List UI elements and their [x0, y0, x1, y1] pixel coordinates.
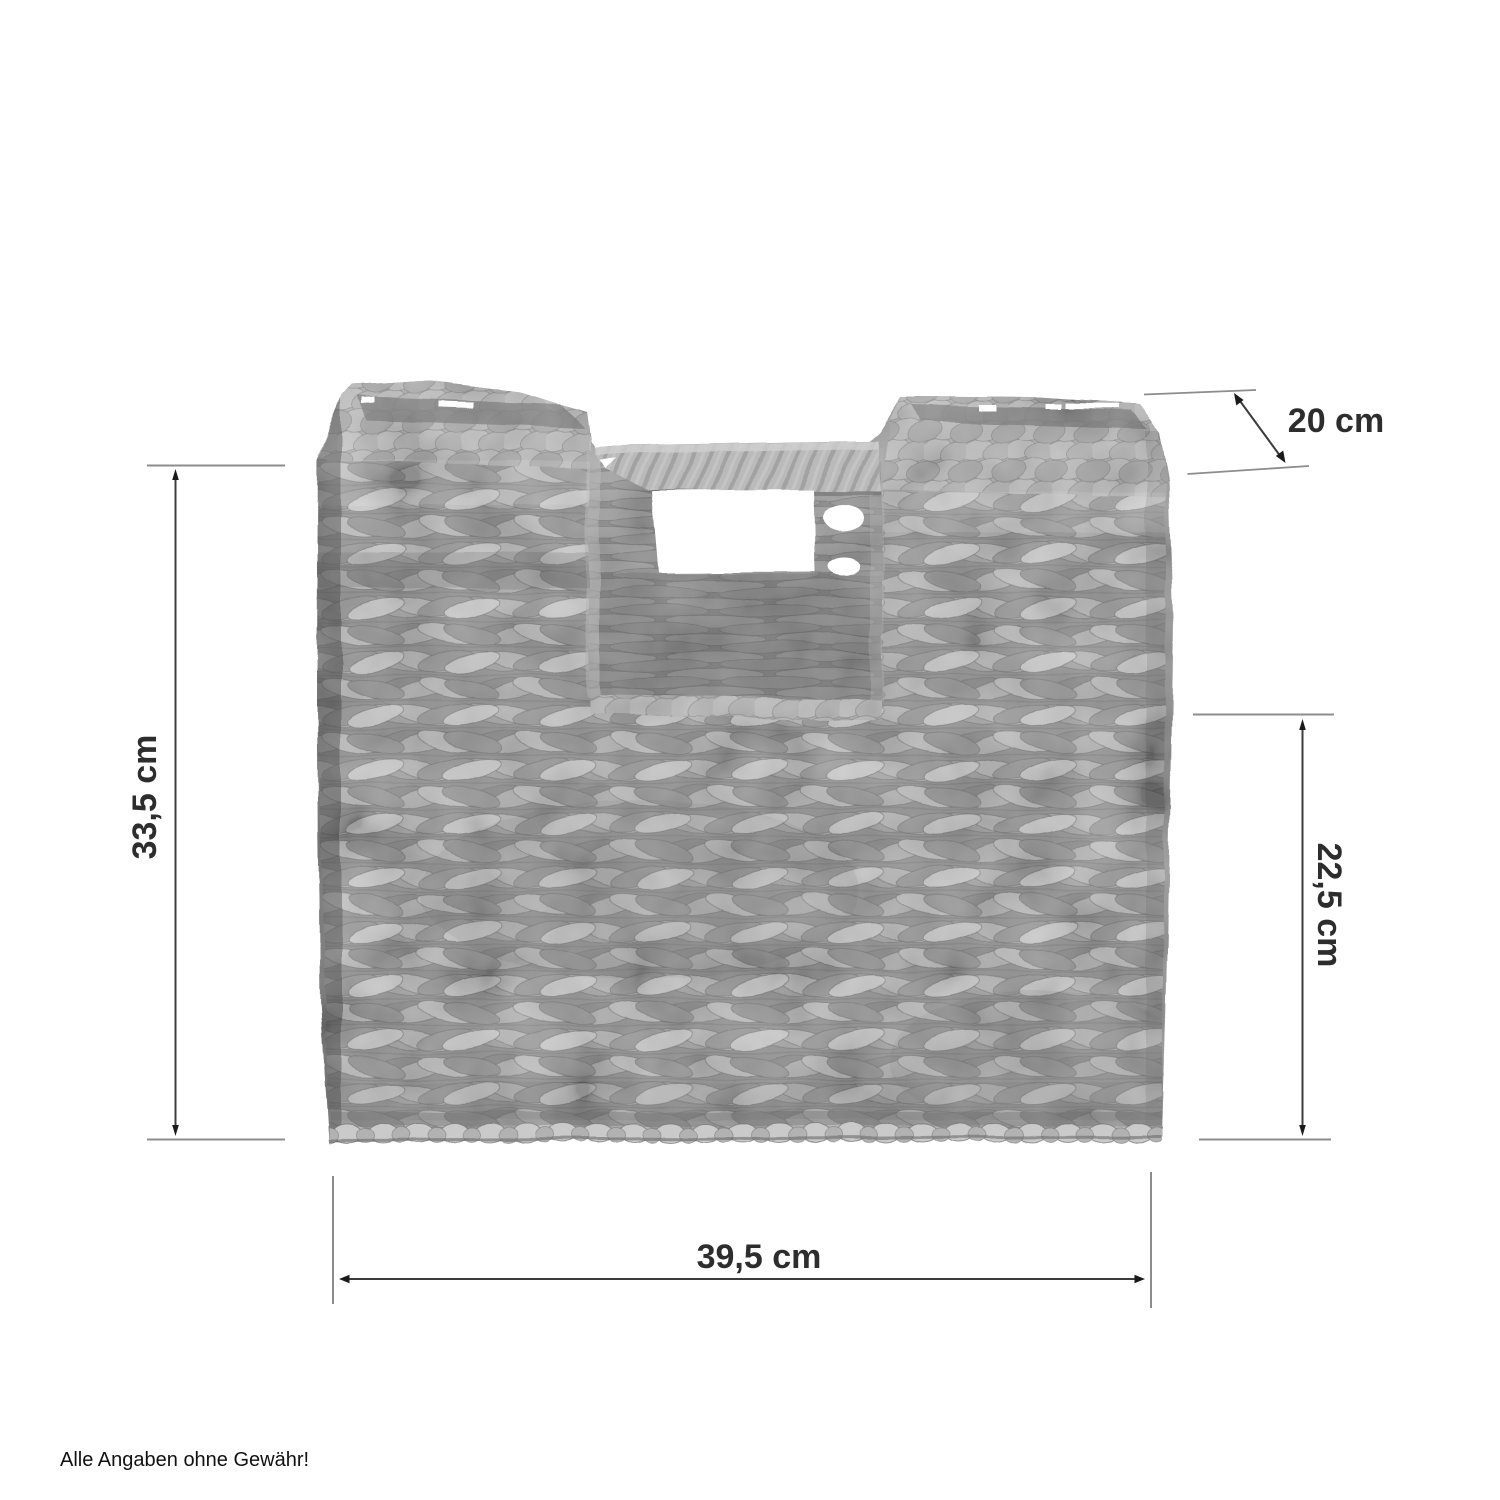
svg-text:20 cm: 20 cm — [1288, 402, 1384, 440]
svg-text:Alle Angaben ohne Gewähr!: Alle Angaben ohne Gewähr! — [60, 1449, 309, 1471]
svg-text:33,5 cm: 33,5 cm — [126, 735, 164, 860]
svg-text:22,5 cm: 22,5 cm — [1310, 843, 1348, 968]
svg-text:39,5 cm: 39,5 cm — [697, 1238, 822, 1276]
